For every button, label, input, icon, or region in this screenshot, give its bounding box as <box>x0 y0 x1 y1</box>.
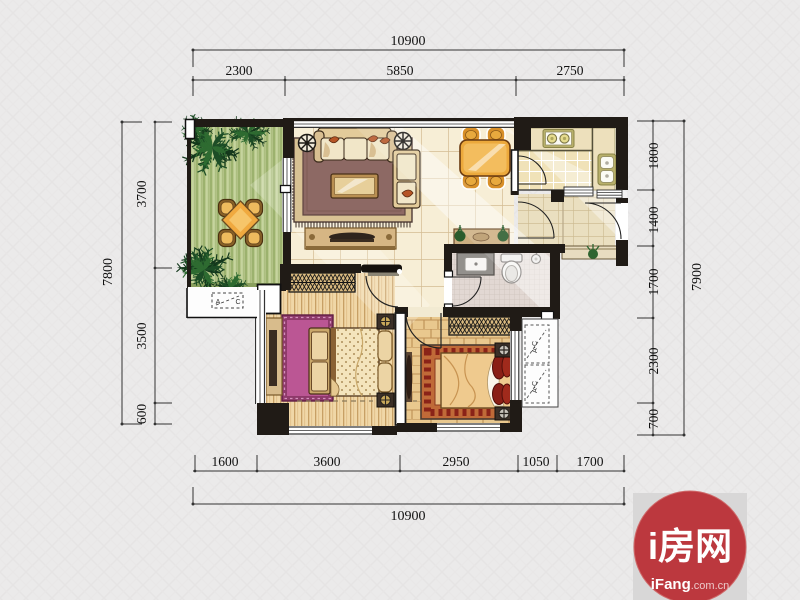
svg-text:700: 700 <box>646 409 661 430</box>
svg-text:5850: 5850 <box>387 63 414 78</box>
svg-text:7900: 7900 <box>690 263 705 291</box>
svg-text:600: 600 <box>134 404 149 425</box>
svg-text:1400: 1400 <box>646 206 661 233</box>
svg-text:3500: 3500 <box>134 322 149 349</box>
svg-text:1600: 1600 <box>212 454 239 469</box>
svg-text:A-C: A-C <box>532 341 539 353</box>
svg-text:1800: 1800 <box>646 142 661 169</box>
svg-text:2300: 2300 <box>226 63 253 78</box>
svg-text:C: C <box>235 299 240 306</box>
svg-text:7800: 7800 <box>101 258 116 286</box>
svg-text:10900: 10900 <box>391 509 426 524</box>
svg-text:2950: 2950 <box>443 454 470 469</box>
svg-text:1700: 1700 <box>577 454 604 469</box>
svg-text:A: A <box>216 299 221 306</box>
svg-text:A-C: A-C <box>532 381 539 393</box>
svg-text:10900: 10900 <box>391 34 426 49</box>
svg-text:2750: 2750 <box>557 63 584 78</box>
svg-text:3700: 3700 <box>134 180 149 207</box>
svg-text:1700: 1700 <box>646 268 661 295</box>
svg-text:3600: 3600 <box>314 454 341 469</box>
svg-text:2300: 2300 <box>646 347 661 374</box>
svg-text:1050: 1050 <box>523 454 550 469</box>
svg-text:i房网: i房网 <box>648 526 732 567</box>
